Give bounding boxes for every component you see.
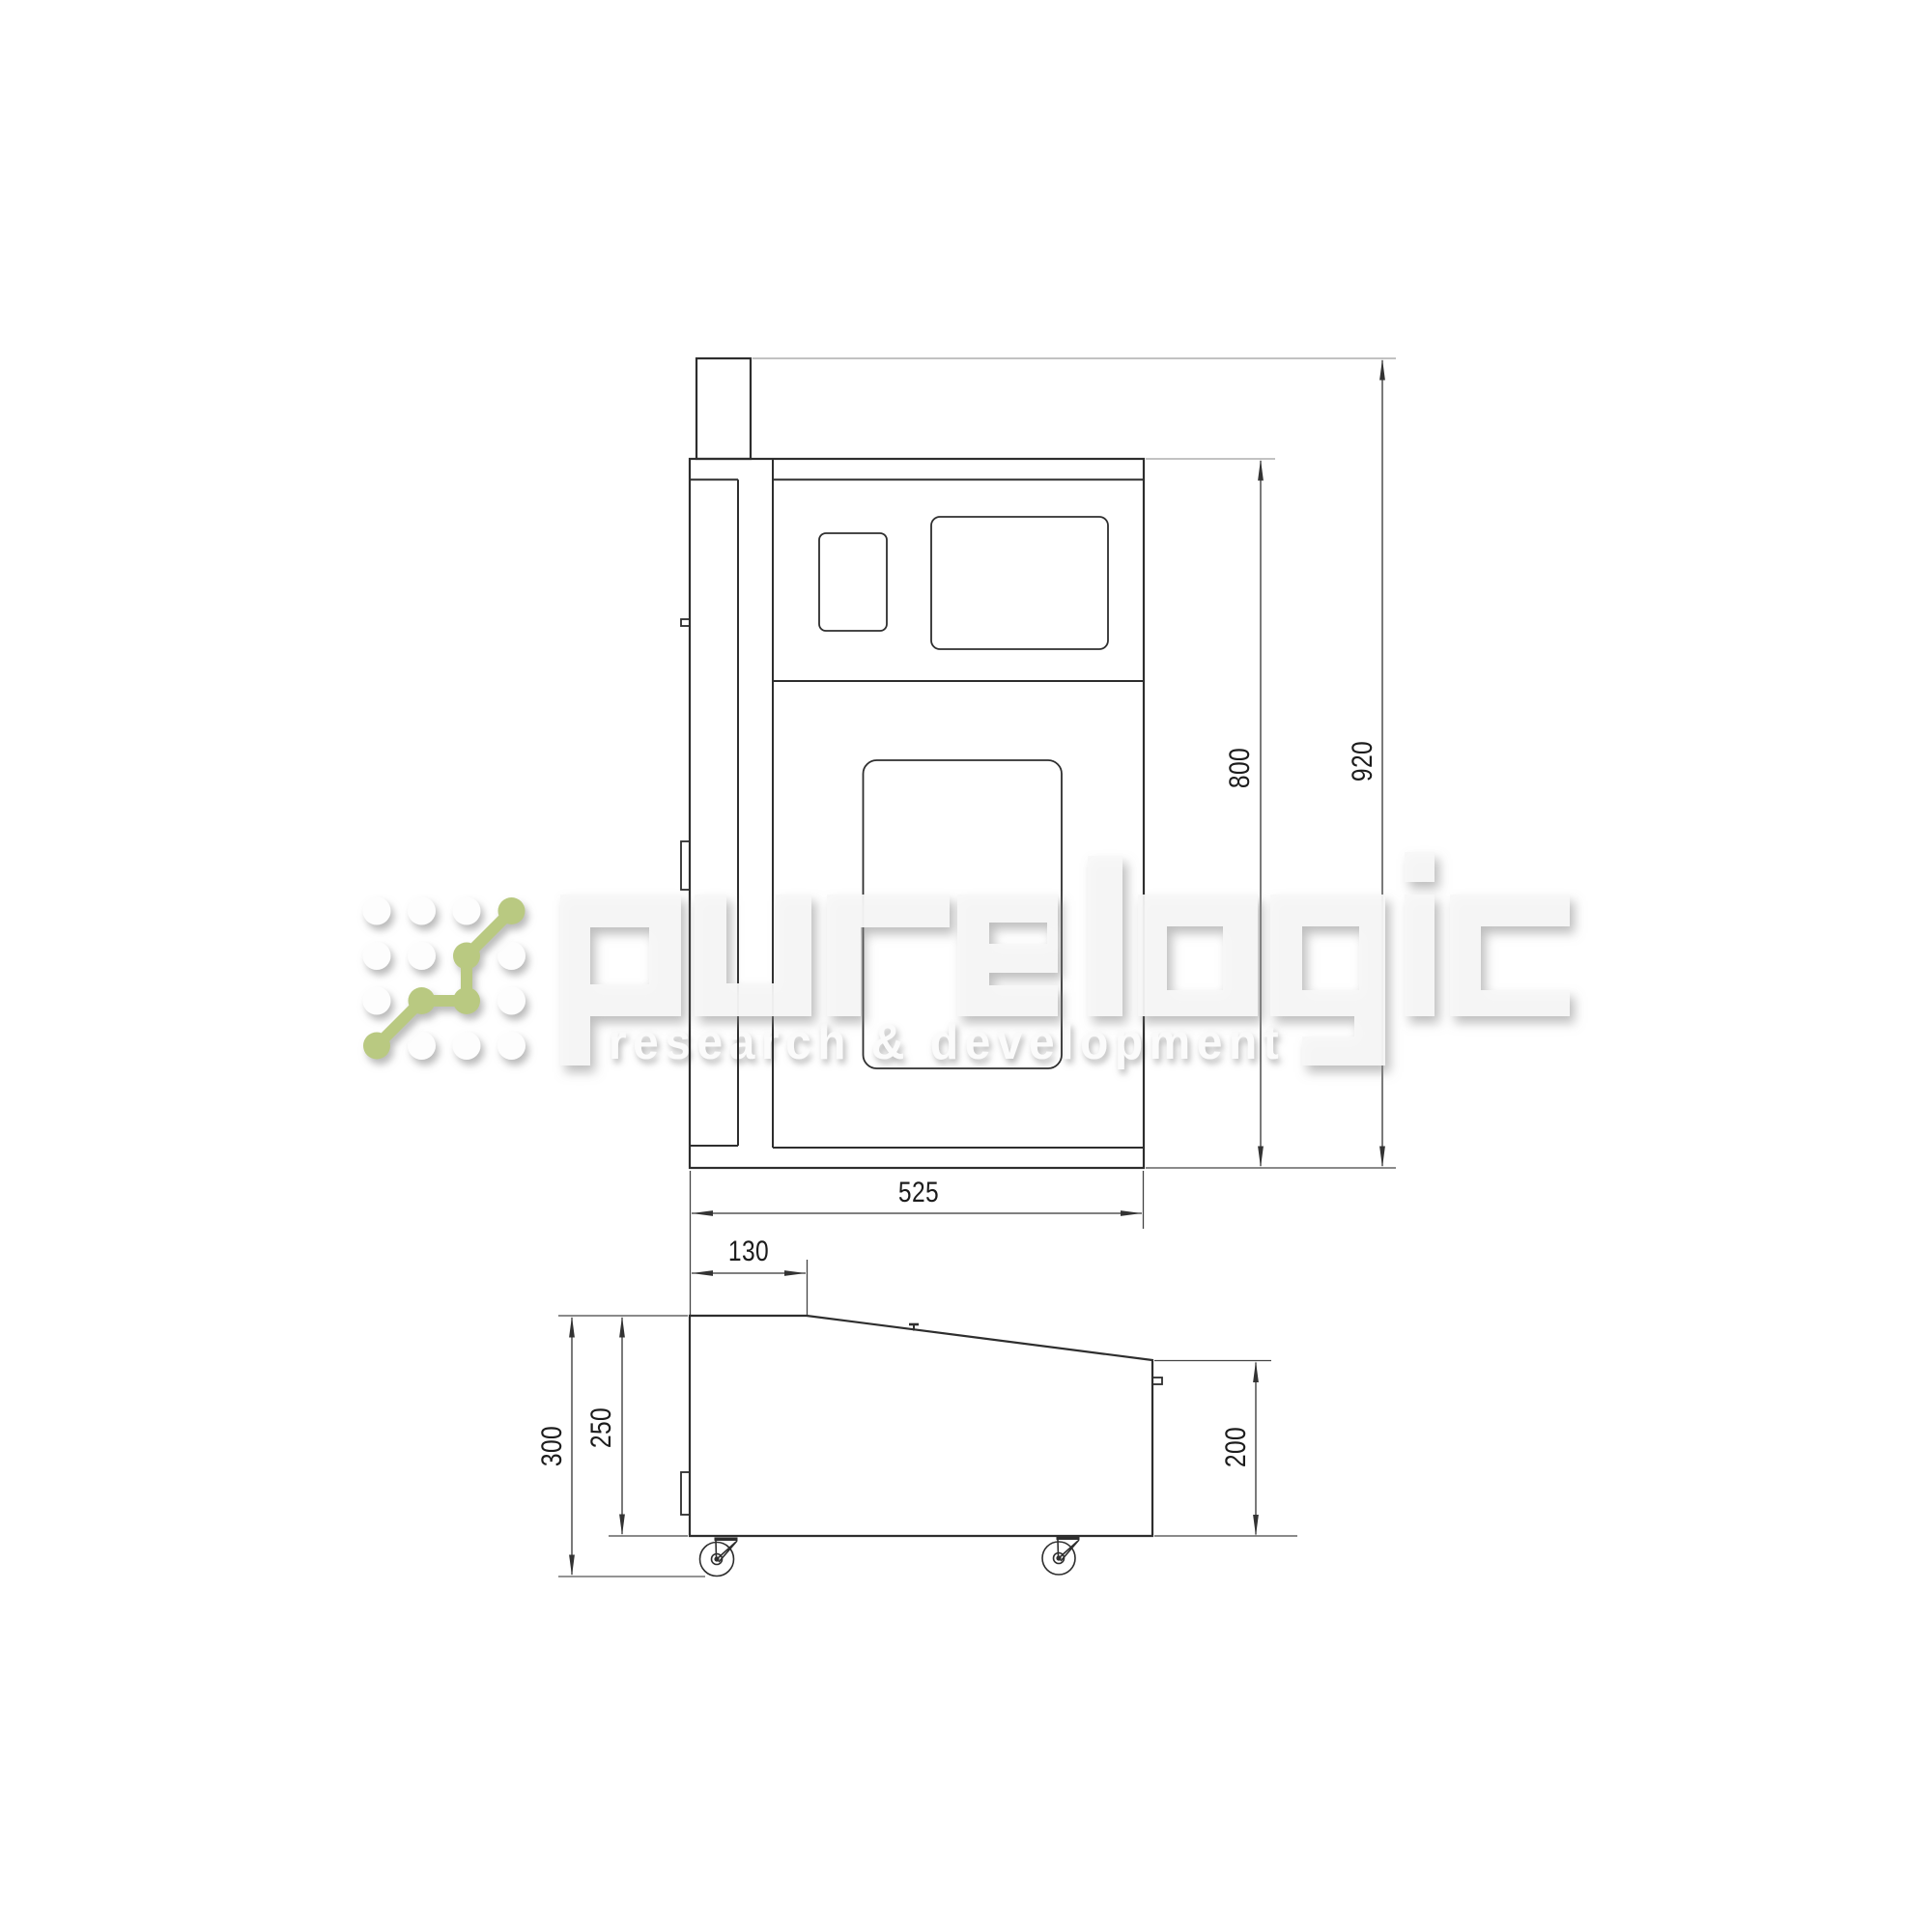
svg-text:200: 200: [1219, 1427, 1252, 1467]
svg-text:525: 525: [898, 1176, 939, 1208]
svg-text:920: 920: [1346, 741, 1378, 781]
svg-text:250: 250: [584, 1407, 617, 1448]
svg-text:300: 300: [535, 1426, 568, 1466]
svg-text:800: 800: [1223, 748, 1256, 788]
svg-text:research & development: research & development: [609, 1013, 1279, 1069]
svg-text:130: 130: [728, 1235, 769, 1267]
